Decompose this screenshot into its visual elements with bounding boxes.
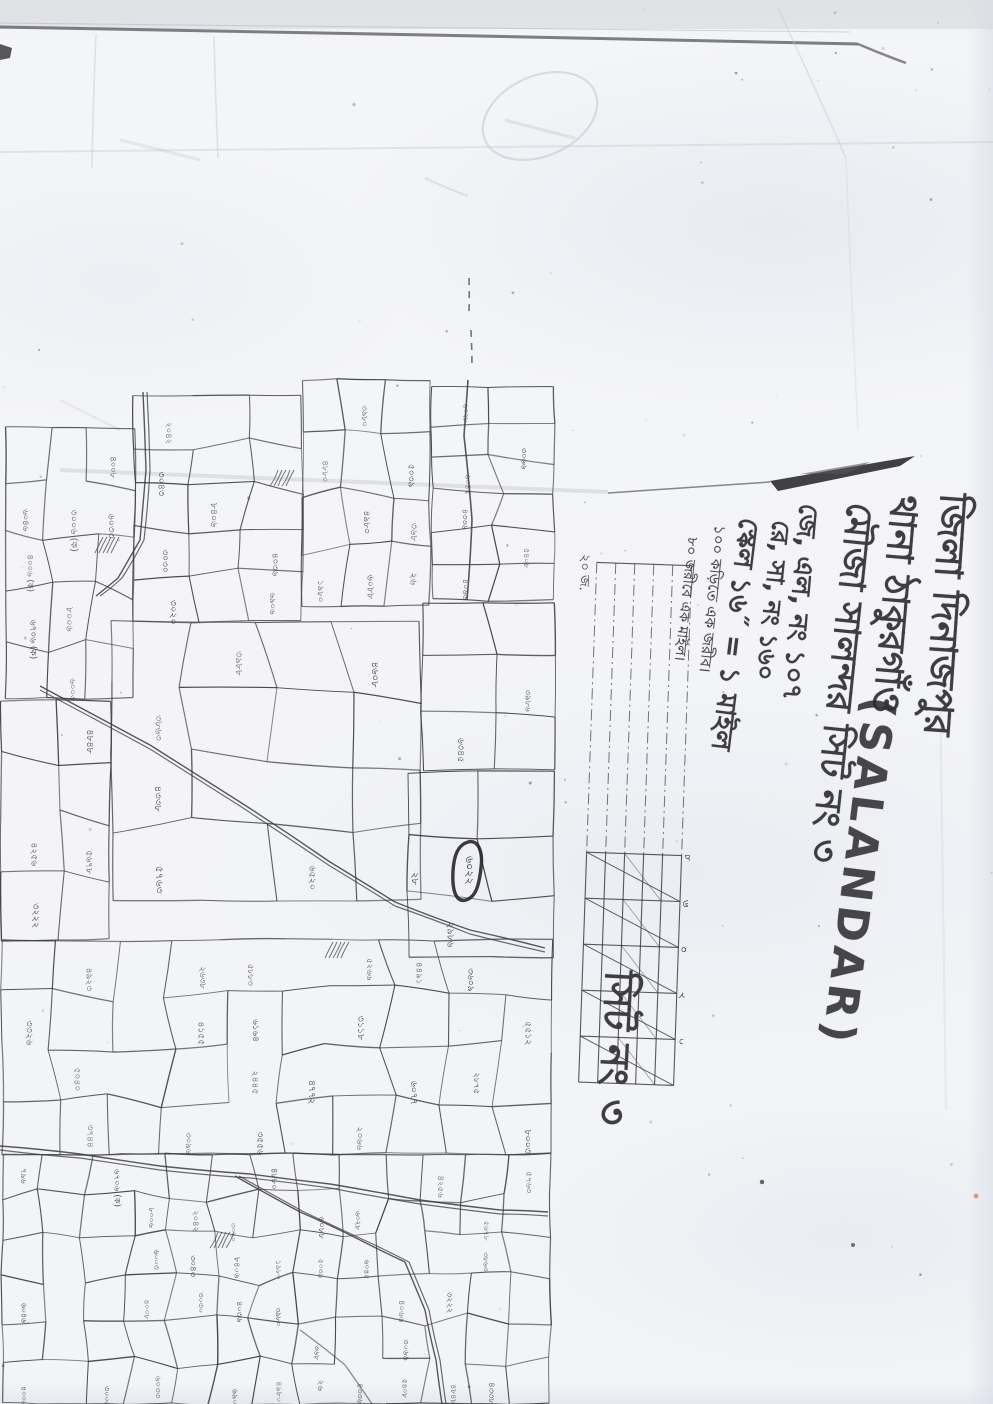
plot-number-label: ৪০৩৬: [235, 1301, 245, 1322]
plot-number-label: ৩৩২৬: [24, 1020, 35, 1046]
plot-number-label: ৫৬৭৮: [482, 1221, 491, 1242]
plot-number-label: ৬৭০৬ (ক): [28, 620, 38, 659]
plot-number-label: ৩০০৬ (ক): [68, 509, 79, 551]
plot-number-label: ৪৩৩৮: [152, 786, 163, 813]
plot-number-label: ২৮৭৫: [472, 1072, 482, 1094]
plot-number-label: ৬০২৮: [354, 1211, 363, 1230]
plot-number-label: ৫৪০৮: [401, 1379, 410, 1398]
plot-number-label: ৩০৬৬: [401, 1339, 411, 1360]
plot-number-label: ৪০৩৬: [270, 553, 280, 577]
plot-number-label: ৬০০৩: [152, 1249, 161, 1269]
plot-number-label: ৪০০৮: [143, 1300, 152, 1321]
plot-number-labels: ৬০৪৬৪০০৬ (ক)৬৭০৬ (ক)৩০০৬ (ক)৮০০৬৬০০৩৪০০৮…: [19, 404, 535, 1404]
plot-number-label: ৩৭৪৪: [85, 1125, 95, 1148]
plot-number-label: ৪৩৩৬: [461, 509, 470, 530]
plot-number-label: ৫৭৬৩: [525, 1171, 535, 1193]
plot-number-label: ৫৭৬৩: [153, 866, 166, 894]
plot-number-label: ৩৬৮: [313, 1345, 322, 1361]
plot-number-label: ৩৯৮০: [360, 405, 370, 426]
plot-number-label: ৬০৪৫: [362, 1259, 371, 1279]
diagonal-scale-bar: ৮৬৪২০২০ জ.: [560, 554, 700, 1088]
plot-number-label: ৪০৬৬: [396, 1300, 406, 1323]
plot-number-label: ৬০৩৩: [152, 1376, 162, 1399]
scanned-map-page: ৬০৪৬৪০০৬ (ক)৬৭০৬ (ক)৩০০৬ (ক)৮০০৬৬০০৩৪০০৮…: [0, 0, 993, 1404]
plot-number-label: ৪১৫৫: [195, 1021, 206, 1045]
plot-number-label: ৩০২০: [167, 600, 178, 625]
plot-number-label: ৪০০৮: [109, 456, 119, 478]
plot-number-label: ৩৮৬৩: [152, 715, 163, 741]
plot-number-label: ৩৬০৯: [465, 968, 475, 992]
plot-number-label: ৬০৮৮: [364, 575, 375, 600]
plot-number-label: ৩২২২: [30, 903, 41, 928]
faint-stamp: [60, 55, 611, 430]
plot-number-label: ৫০৩৯: [405, 464, 416, 488]
plot-number-label: ৮৪০৬: [208, 503, 219, 528]
plot-number-label: ৪২৫৬: [28, 843, 38, 867]
plot-number-label: ৫০৩৯: [317, 1259, 326, 1279]
plot-number-label: ৮৪০৬: [232, 1257, 242, 1278]
plot-number-label: ২০৪২: [164, 422, 174, 444]
plot-number-label: ৬০৩৩: [106, 513, 117, 539]
plot-number-label: ৬৫২০: [306, 865, 317, 890]
plot-number-label: ৩৯৮৬: [523, 690, 533, 713]
highlighted-plot-number: ৬০২২: [463, 856, 476, 885]
plot-number-label: ৬০০৩: [68, 678, 78, 700]
plot-number-label: ৩১১৮: [355, 1016, 366, 1041]
plot-number-label: ১৯৮০: [315, 580, 325, 602]
plot-number-label: ৬৭০৬ (ক): [112, 1169, 122, 1207]
plot-number-label: ৩০৪৩: [155, 472, 166, 497]
plot-number-label: ২৬৩৮: [197, 966, 207, 989]
plot-number-label: ৪৪৯১: [413, 962, 423, 985]
dashed-survey-line: [469, 278, 472, 367]
plot-number-label: ৪৩৩৮: [487, 1382, 497, 1404]
plot-number-label: ২৬: [408, 573, 419, 585]
plot-number-label: ৪৭৭২: [306, 1080, 317, 1104]
plot-number-label: ৩০৩০: [159, 549, 169, 573]
plot-number-label: ৫৮৮৩: [246, 964, 256, 986]
plot-number-label: ৩০৬৬: [520, 448, 530, 470]
plot-number-label: ৫৪০৮: [522, 548, 531, 569]
plot-number-label: ৫৫১২: [522, 1021, 533, 1045]
plot-number-label: ২৬: [315, 1380, 325, 1392]
plot-number-label: ৬০৪৬: [19, 1303, 28, 1323]
plot-number-label: ৩০৩০: [196, 1292, 205, 1313]
plot-number-label: ৩৬৮: [408, 523, 419, 543]
plot-boundaries: [0, 379, 555, 1404]
plot-number-label: ৮০০৬: [63, 607, 74, 633]
plot-number-label: ৪৮৪৮: [449, 1384, 458, 1404]
plot-number-label: ৬৯০৬: [268, 593, 278, 615]
plot-number-label: ১৯৮০: [274, 1260, 283, 1280]
plot-number-label: ৪৯৮০: [361, 510, 371, 534]
plot-number-label: ৩২২২: [445, 1292, 455, 1313]
plot-number-label: ৪০০৬ (ক): [25, 554, 35, 592]
plot-number-label: ৭৯৬: [19, 1168, 28, 1183]
scale-bar-end-label: ২০ জ.: [576, 554, 592, 591]
adjacent-plot-number: ২৮: [409, 872, 420, 886]
plot-number-label: ৩৯৮৮: [233, 651, 244, 677]
plot-number-label: ৩৯৮০: [274, 1307, 283, 1326]
plot-number-label: ৬৯০৬: [230, 1389, 240, 1404]
plot-number-label: ৫০৪০: [72, 1068, 83, 1092]
plot-number-label: ৪০০৬ (ক): [20, 1386, 29, 1404]
plot-number-label: ৬০৪৬: [21, 509, 31, 531]
plot-number-label: ৪৬০৮: [369, 661, 380, 687]
plot-number-label: ৪৯২৩: [83, 968, 93, 992]
plot-number-label: ৩০৯৬: [184, 1132, 194, 1154]
plot-number-label: ৪০৬৬: [461, 579, 471, 600]
plot-number-label: ৬১৬৪: [250, 1019, 260, 1042]
plot-number-label: ২৪৪৫: [249, 1071, 259, 1095]
plot-number-label: ৪৮৮০: [269, 1168, 279, 1189]
plot-number-label: ৮০০৬: [147, 1208, 156, 1228]
plot-number-label: ৬৩৪৫: [455, 738, 466, 763]
scale-bar-drawing: ৮৬৪২০২০ জ.: [560, 554, 700, 1088]
plot-number-label: ৩৮৬৩: [482, 1252, 491, 1271]
plot-number-label: ৫৬৭৮: [84, 850, 94, 874]
roads: [0, 380, 548, 1404]
plot-number-label: ৬০৭৭: [408, 1081, 419, 1105]
plot-number-label: ২০৪২: [191, 1210, 201, 1231]
plot-number-label: ৩০০৬ (ক): [103, 1386, 112, 1404]
plot-number-label: ৪৯৮০: [275, 1381, 284, 1402]
plot-number-label: ৫২৬৬: [364, 958, 374, 981]
plot-number-label: ৪৮৪৮: [84, 729, 95, 753]
plot-number-label: ৮০০৩: [522, 1130, 533, 1154]
plot-number-label: ২০৬৬: [354, 1127, 364, 1150]
plot-number-label: ৪৮৮০: [320, 460, 330, 482]
plot-number-label: ৩০৪৩: [188, 1255, 198, 1277]
plot-number-label: ৩৫৫৬: [254, 1131, 264, 1155]
plot-number-label: ৪২৫৬: [435, 1175, 445, 1198]
